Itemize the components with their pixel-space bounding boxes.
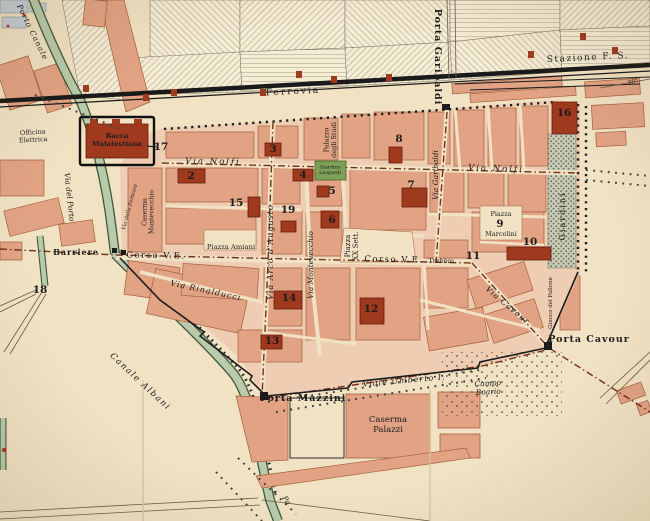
label-via-nolfi-east: Via Nolfi bbox=[468, 163, 524, 175]
site-number-15: 15 bbox=[229, 197, 244, 209]
label-via-arco-d-augusto: Via Arco d'Augusto bbox=[266, 204, 275, 300]
label-officina-elettrica: OfficinaElettrica bbox=[18, 128, 47, 145]
label-via-nolfi-west: Via Nolfi bbox=[185, 157, 241, 168]
label-piazza-amiani: Piazza Amiani bbox=[207, 243, 256, 251]
label-via-montevecchio: Via Montevecchio bbox=[306, 231, 315, 299]
label-piazza-marcolini-1: Piazza bbox=[490, 210, 511, 218]
site-number-8: 8 bbox=[395, 133, 402, 145]
label-porta-cavour: Porta Cavour bbox=[548, 334, 630, 345]
paper-vignette bbox=[0, 0, 650, 521]
label-porta-mazzini: Porta Mazzini bbox=[260, 393, 347, 404]
site-number-6: 6 bbox=[328, 214, 335, 226]
site-number-3: 3 bbox=[269, 143, 276, 155]
site-number-5: 5 bbox=[328, 185, 335, 197]
label-caserma-palazzi: CasermaPalazzi bbox=[369, 415, 407, 435]
label-giuoco-del-pallone: Giuoco del Pallone bbox=[548, 277, 554, 329]
paper-effects-layer bbox=[0, 0, 650, 521]
site-number-16: 16 bbox=[557, 107, 572, 119]
site-number-14: 14 bbox=[282, 292, 297, 304]
label-porta-garibaldi: Porta Garibaldi bbox=[433, 9, 444, 106]
label-giardino-leopardi: GiardinoLeopardi bbox=[319, 164, 341, 176]
label-via-garibaldi: Via Garibaldi bbox=[431, 149, 440, 199]
label-corso-ve-east: Corso V.E. bbox=[364, 254, 423, 265]
site-number-2: 2 bbox=[187, 170, 194, 182]
label-barriere: Barriere bbox=[53, 247, 99, 257]
site-number-11: 11 bbox=[466, 250, 481, 262]
site-number-4: 4 bbox=[299, 169, 306, 181]
label-piazza-marcolini-2: Marcolini bbox=[485, 230, 517, 238]
label-trebbio: Trebbio bbox=[428, 257, 454, 265]
label-corso-ve-west: Corso V.E. bbox=[126, 250, 185, 261]
city-map-svg: FerroviaStazione F. S.str.Porta Garibald… bbox=[0, 0, 650, 521]
site-number-19: 19 bbox=[281, 204, 296, 216]
site-number-10: 10 bbox=[523, 236, 538, 248]
site-number-13: 13 bbox=[265, 335, 280, 347]
site-number-17: 17 bbox=[154, 141, 169, 153]
site-number-18: 18 bbox=[33, 284, 48, 296]
label-giardini: Giardini bbox=[558, 192, 567, 241]
label-piazza-xx-settembre: PiazzaXX Sett. bbox=[344, 232, 360, 261]
site-number-12: 12 bbox=[364, 303, 379, 315]
vintage-city-map-of-fano: FerroviaStazione F. S.str.Porta Garibald… bbox=[0, 0, 650, 521]
label-piazza-marcolini-9: 9 bbox=[497, 219, 504, 230]
site-number-7: 7 bbox=[407, 179, 414, 191]
label-campo-boario: CampoBoario bbox=[474, 377, 502, 396]
